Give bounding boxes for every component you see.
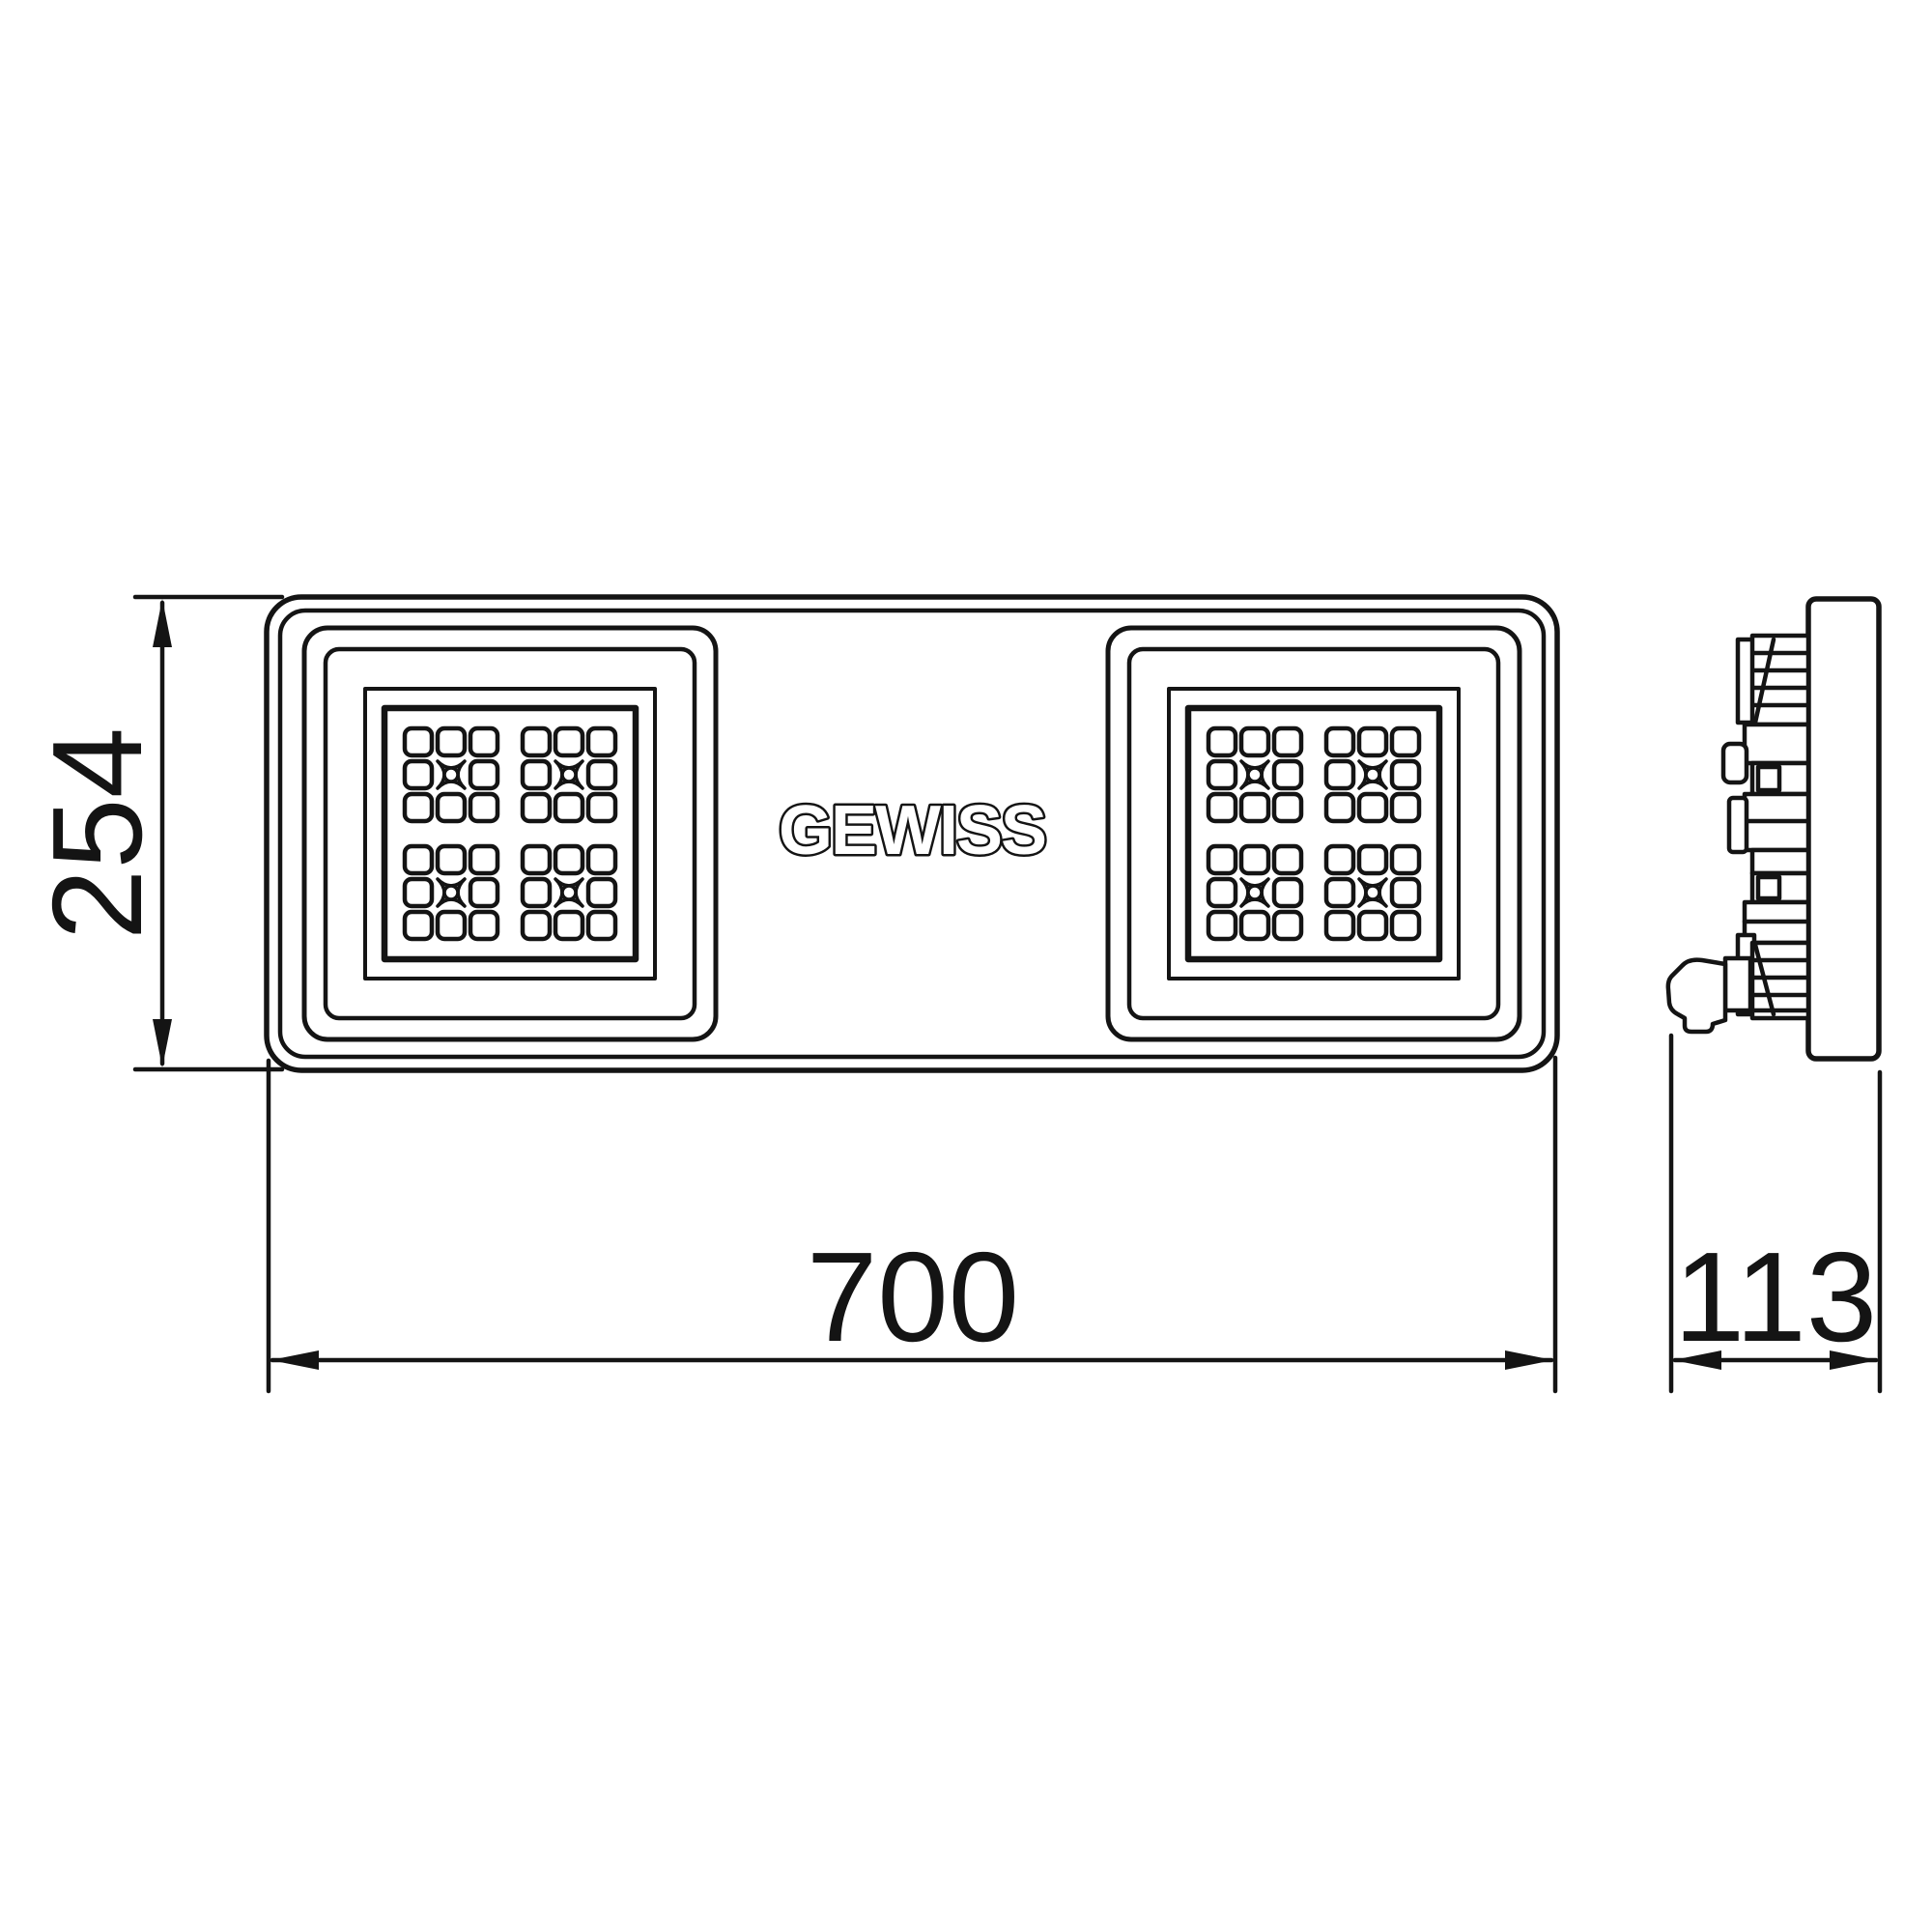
technical-drawing-page: GEWISS <box>0 0 1932 1932</box>
arrow-up-icon <box>153 599 172 647</box>
side-knob <box>1723 744 1747 782</box>
gewiss-logo: GEWISS <box>779 792 1045 869</box>
led-module-right <box>1108 628 1520 1039</box>
side-view <box>1668 599 1879 1059</box>
dimension-width-label: 700 <box>807 1226 1019 1368</box>
dimension-depth-label: 113 <box>1674 1226 1877 1368</box>
arrow-right-icon <box>1505 1350 1553 1370</box>
floodlight-dimension-drawing: GEWISS <box>0 0 1932 1932</box>
led-module-left <box>304 628 716 1039</box>
dimension-height-label: 254 <box>26 727 168 940</box>
arrow-left-icon <box>270 1350 319 1370</box>
cable-gland <box>1668 958 1750 1032</box>
front-view: GEWISS <box>267 597 1557 1070</box>
side-front-slab <box>1808 599 1879 1059</box>
arrow-down-icon <box>153 1019 172 1067</box>
